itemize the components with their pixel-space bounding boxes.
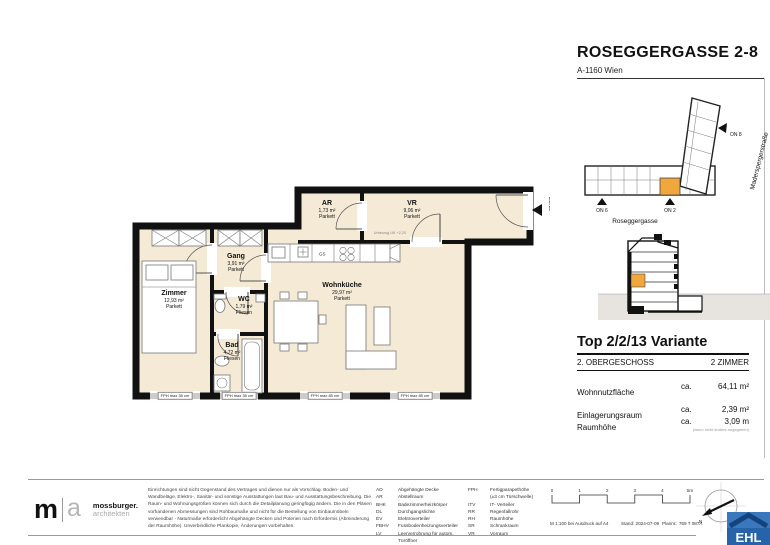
row-ca: ca. xyxy=(681,417,692,426)
svg-text:0: 0 xyxy=(551,488,554,493)
site-building-outline xyxy=(585,98,720,195)
floor-label: 2. OBERGESCHOSS xyxy=(577,358,654,367)
footer-bottom-rule xyxy=(28,535,696,536)
logo-letter-a: a xyxy=(67,496,81,523)
window-label: FPH max 85 cm xyxy=(308,392,343,400)
beam-annotation: Unterzug UK +2,20 xyxy=(374,231,406,235)
street-roseggergasse: Roseggergasse xyxy=(612,218,658,225)
row-label-raumhoehe: Raumhöhe xyxy=(577,423,616,432)
svg-text:1: 1 xyxy=(578,488,581,493)
architect-logo: m a mossburger. architekten xyxy=(34,496,138,523)
page-title: ROSEGGERGASSE 2-8 xyxy=(577,44,758,62)
svg-text:4: 4 xyxy=(661,488,664,493)
logo-divider xyxy=(62,498,63,522)
abbr-legend-right: FPHFertigparapethöhe (±3 cm Türschwelle)… xyxy=(468,487,546,538)
unit-title: Top 2/2/13 Variante xyxy=(577,334,749,350)
row-ca: ca. xyxy=(681,405,692,414)
street-maderspergerstrasse: Maderspergerstraße xyxy=(749,131,770,190)
window-label: FPH max 85 cm xyxy=(398,392,433,400)
row-value-wohnnutzflaeche: 64,11 m² xyxy=(718,382,749,391)
bathtub xyxy=(242,339,262,393)
legal-text: Einrichtungen sind nicht Gegenstand des … xyxy=(148,487,374,530)
row-value-raumhoehe: 3,09 m xyxy=(725,417,749,426)
row-ca: ca. xyxy=(681,382,692,391)
row-label-wohnnutzflaeche: Wohnnutzfläche xyxy=(577,388,634,397)
compass-n-label: N xyxy=(699,519,702,524)
site-highlight-unit xyxy=(660,178,680,195)
room-label-wohnkueche: Wohnküche 29,97 m² Parkett xyxy=(322,282,362,302)
label-on8: ON 8 xyxy=(730,132,742,138)
ehl-logo-text: EHL xyxy=(736,530,762,545)
page-subtitle: A-1160 Wien xyxy=(577,66,623,75)
entrance-triangle-on2 xyxy=(665,198,675,205)
unit-entry-marker: 2/2/13 xyxy=(532,197,550,216)
ehl-logo: EHL xyxy=(727,512,770,545)
abbr-legend-left: ADAbgehängte Decke ARAbstellraum BHKBade… xyxy=(376,487,468,545)
label-on2: ON 2 xyxy=(664,208,676,214)
toilet xyxy=(214,294,226,313)
site-plan: ON 6 ON 2 ON 8 Roseggergasse Madersperge… xyxy=(580,92,770,227)
dining-table xyxy=(274,292,326,351)
logo-subname: architekten xyxy=(93,510,138,518)
window-label: FPH max 35 cm xyxy=(222,392,257,400)
building-section xyxy=(598,232,770,328)
info-panel: Top 2/2/13 Variante 2. OBERGESCHOSS 2 ZI… xyxy=(577,334,749,432)
rooms-count: 2 ZIMMER xyxy=(711,358,749,367)
room-label-vr: VR 9,06 m² Parkett xyxy=(404,200,421,220)
row-value-einlagerungsraum: 2,39 m² xyxy=(722,405,749,414)
svg-text:5m: 5m xyxy=(687,488,694,493)
floor-plan-drawing: GS xyxy=(60,175,550,410)
stamp-date: Stand: 2024-07-09 xyxy=(621,521,659,526)
svg-text:2: 2 xyxy=(606,488,609,493)
kitchen-counter: GS xyxy=(268,244,390,262)
room-label-wc: WC 1,79 m² Fliesen xyxy=(236,296,253,316)
logo-letter-m: m xyxy=(34,496,58,523)
header-rule xyxy=(577,78,764,79)
room-label-bad: Bad 4,72 m² Fliesen xyxy=(224,342,241,362)
window-label: FPH max 35 cm xyxy=(158,392,193,400)
svg-text:3: 3 xyxy=(634,488,637,493)
room-label-gang: Gang 3,91 m² Parkett xyxy=(227,253,245,273)
stamp-scale: M 1:100 bei Ausdruck auf A4 xyxy=(550,521,608,526)
entrance-triangle-on6 xyxy=(597,198,607,205)
room-label-ar: AR 1,73 m² Parkett xyxy=(319,200,336,220)
entrance-triangle-on8 xyxy=(718,123,727,133)
dishwasher-label: GS xyxy=(319,252,326,257)
wc-sink xyxy=(256,294,265,302)
label-on6: ON 6 xyxy=(596,208,608,214)
section-highlight-floor xyxy=(631,274,645,287)
room-label-zimmer: Zimmer 12,93 m² Parkett xyxy=(161,290,186,310)
plan-sheet: ROSEGGERGASSE 2-8 A-1160 Wien xyxy=(0,0,770,545)
kitchen-sink xyxy=(272,247,285,258)
footer-top-rule xyxy=(28,479,764,480)
scale-bar: 0 1 2 3 4 5m xyxy=(548,486,698,508)
unit-marker-label: 2/2/13 xyxy=(547,197,550,211)
washing-machine xyxy=(214,375,230,391)
